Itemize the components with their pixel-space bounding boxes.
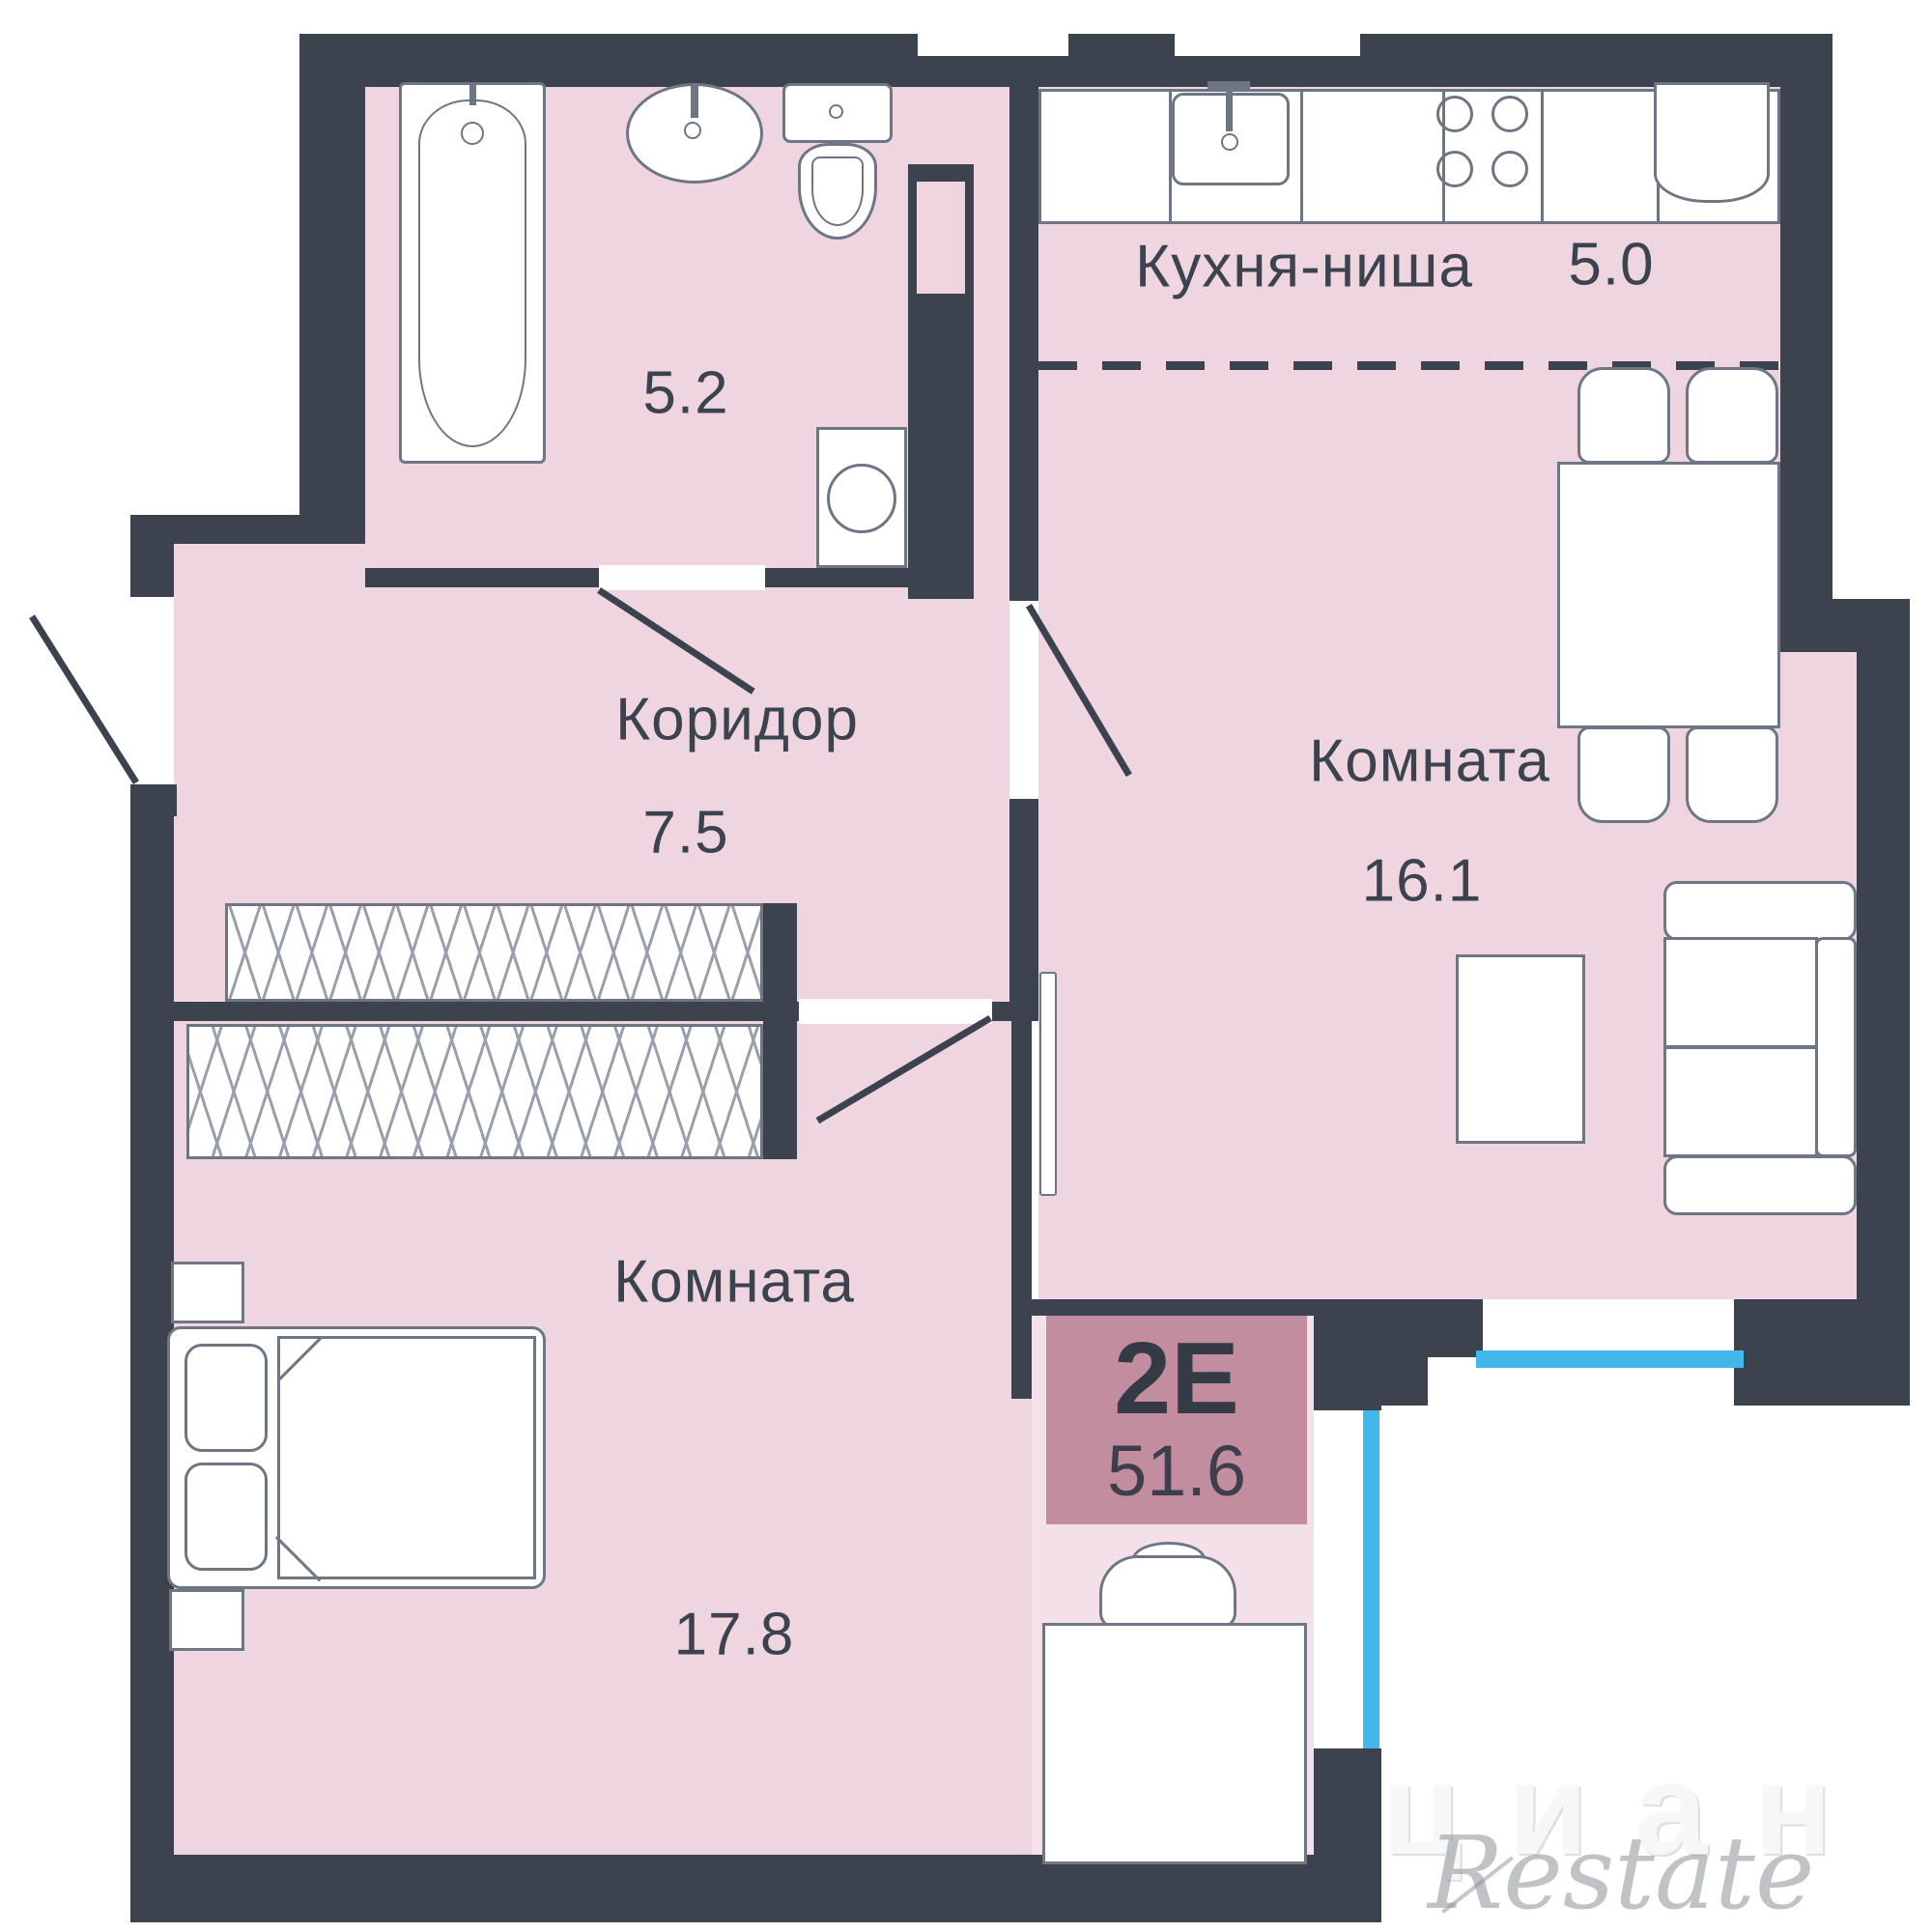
wall-bay-top xyxy=(1032,1299,1314,1316)
stove-burner xyxy=(1436,151,1473,187)
dining-chair xyxy=(1577,367,1670,464)
wall-living-bottom-right-stub xyxy=(1734,1299,1857,1406)
bedroom-name-label: Комната xyxy=(613,1248,855,1317)
coffee-table xyxy=(1456,954,1585,1144)
desk xyxy=(1042,1623,1307,1864)
wall-bathroom-bottom-left xyxy=(365,568,599,587)
wall-kitchen-upper xyxy=(1009,87,1038,601)
stove-burner xyxy=(1492,96,1528,132)
kitchen-area-label: 5.0 xyxy=(1568,231,1654,299)
sink-faucet-knob xyxy=(684,122,701,139)
dining-chair xyxy=(1686,367,1778,464)
bedroom-bay-link-floor xyxy=(1011,1399,1032,1855)
dining-chair xyxy=(1686,726,1778,823)
bedroom-door-opening xyxy=(799,999,992,1024)
bed-blanket xyxy=(277,1336,536,1579)
desk-chair-seat xyxy=(1099,1555,1236,1629)
wall-corridor-bedroom xyxy=(130,1002,799,1021)
dining-table xyxy=(1557,462,1780,728)
washing-machine-drum xyxy=(827,464,896,533)
living-door-opening xyxy=(1009,601,1038,799)
living-name-label: Комната xyxy=(1309,727,1550,796)
living-window xyxy=(1476,1350,1744,1368)
kitchen-faucet-stem xyxy=(1226,81,1233,131)
wall-living-bottom-left-substub xyxy=(1381,1357,1428,1406)
wall-left-stub-above-door xyxy=(130,544,174,597)
counter-divider xyxy=(1300,92,1303,221)
wall-left-stub-below-door xyxy=(130,784,177,816)
sofa-armrest xyxy=(1663,1155,1857,1215)
unit-total-area: 51.6 xyxy=(1107,1430,1246,1512)
wall-right-upper xyxy=(1780,34,1833,652)
wall-bottom xyxy=(130,1855,1381,1922)
dining-chair xyxy=(1577,726,1670,823)
bathtub-inner xyxy=(418,99,526,447)
living-area-label: 16.1 xyxy=(1362,847,1483,916)
wall-wardrobe-vertical xyxy=(763,903,797,1159)
counter-divider xyxy=(1541,92,1544,221)
bed-pillow xyxy=(185,1463,268,1571)
wall-corridor-bedroom-stub xyxy=(992,1002,1034,1021)
kitchen-niche-dashed-line xyxy=(1038,361,1780,370)
kitchen-name-label: Кухня-ниша xyxy=(1135,233,1473,301)
kitchen-faucet-knob xyxy=(1221,133,1238,151)
stove-burner xyxy=(1492,151,1528,187)
bed-pillow xyxy=(185,1344,268,1452)
bay-window xyxy=(1363,1410,1379,1748)
wall-kitchen-lower xyxy=(1009,799,1038,1021)
wall-right-lower xyxy=(1857,599,1910,1406)
corridor-area-label: 7.5 xyxy=(642,799,728,867)
wall-entry-step xyxy=(130,515,365,544)
toilet-bowl-inner xyxy=(811,156,864,226)
sofa-seat xyxy=(1663,937,1818,1048)
watermark-restate: Restate xyxy=(1428,1814,1814,1932)
wall-bathroom-left xyxy=(299,87,365,544)
bathtub-faucet xyxy=(469,82,476,105)
bedroom-area-label: 17.8 xyxy=(674,1601,795,1669)
bathroom-area-label: 5.2 xyxy=(642,359,728,428)
corridor-name-label: Коридор xyxy=(615,686,859,754)
wardrobe-bedroom xyxy=(186,1024,763,1159)
sofa-armrest xyxy=(1663,881,1857,941)
fridge xyxy=(1654,82,1770,203)
bathtub-drain xyxy=(461,122,484,145)
wall-bathroom-bottom-right xyxy=(763,568,908,587)
unit-type-badge: 2Е 51.6 xyxy=(1046,1316,1307,1524)
entry-door-swing xyxy=(29,614,139,784)
wall-living-bottom-left-stub xyxy=(1381,1299,1483,1357)
wall-top-notch xyxy=(918,34,1068,56)
bathroom-door-opening xyxy=(599,565,765,590)
wall-bay-right-lower xyxy=(1314,1748,1381,1869)
wardrobe-corridor xyxy=(225,903,763,1002)
wall-bay-right-upper xyxy=(1314,1299,1381,1410)
sliding-door-panel xyxy=(1039,972,1057,1196)
stove-burner xyxy=(1436,96,1473,132)
wall-top-notch xyxy=(1175,34,1360,56)
ventilation-duct xyxy=(911,176,971,299)
unit-type-label: 2Е xyxy=(1114,1327,1239,1430)
floor-plan: 2Е 51.6 5.2 Коридор 7.5 Кухня-ниша 5.0 К… xyxy=(0,0,1932,1932)
toilet-tank-button xyxy=(829,104,843,119)
sofa-seat xyxy=(1663,1046,1818,1157)
wall-bedroom-living xyxy=(1011,1021,1032,1399)
sink-faucet xyxy=(691,83,698,118)
nightstand xyxy=(171,1262,244,1323)
sofa-back xyxy=(1815,937,1857,1157)
nightstand xyxy=(169,1589,244,1651)
